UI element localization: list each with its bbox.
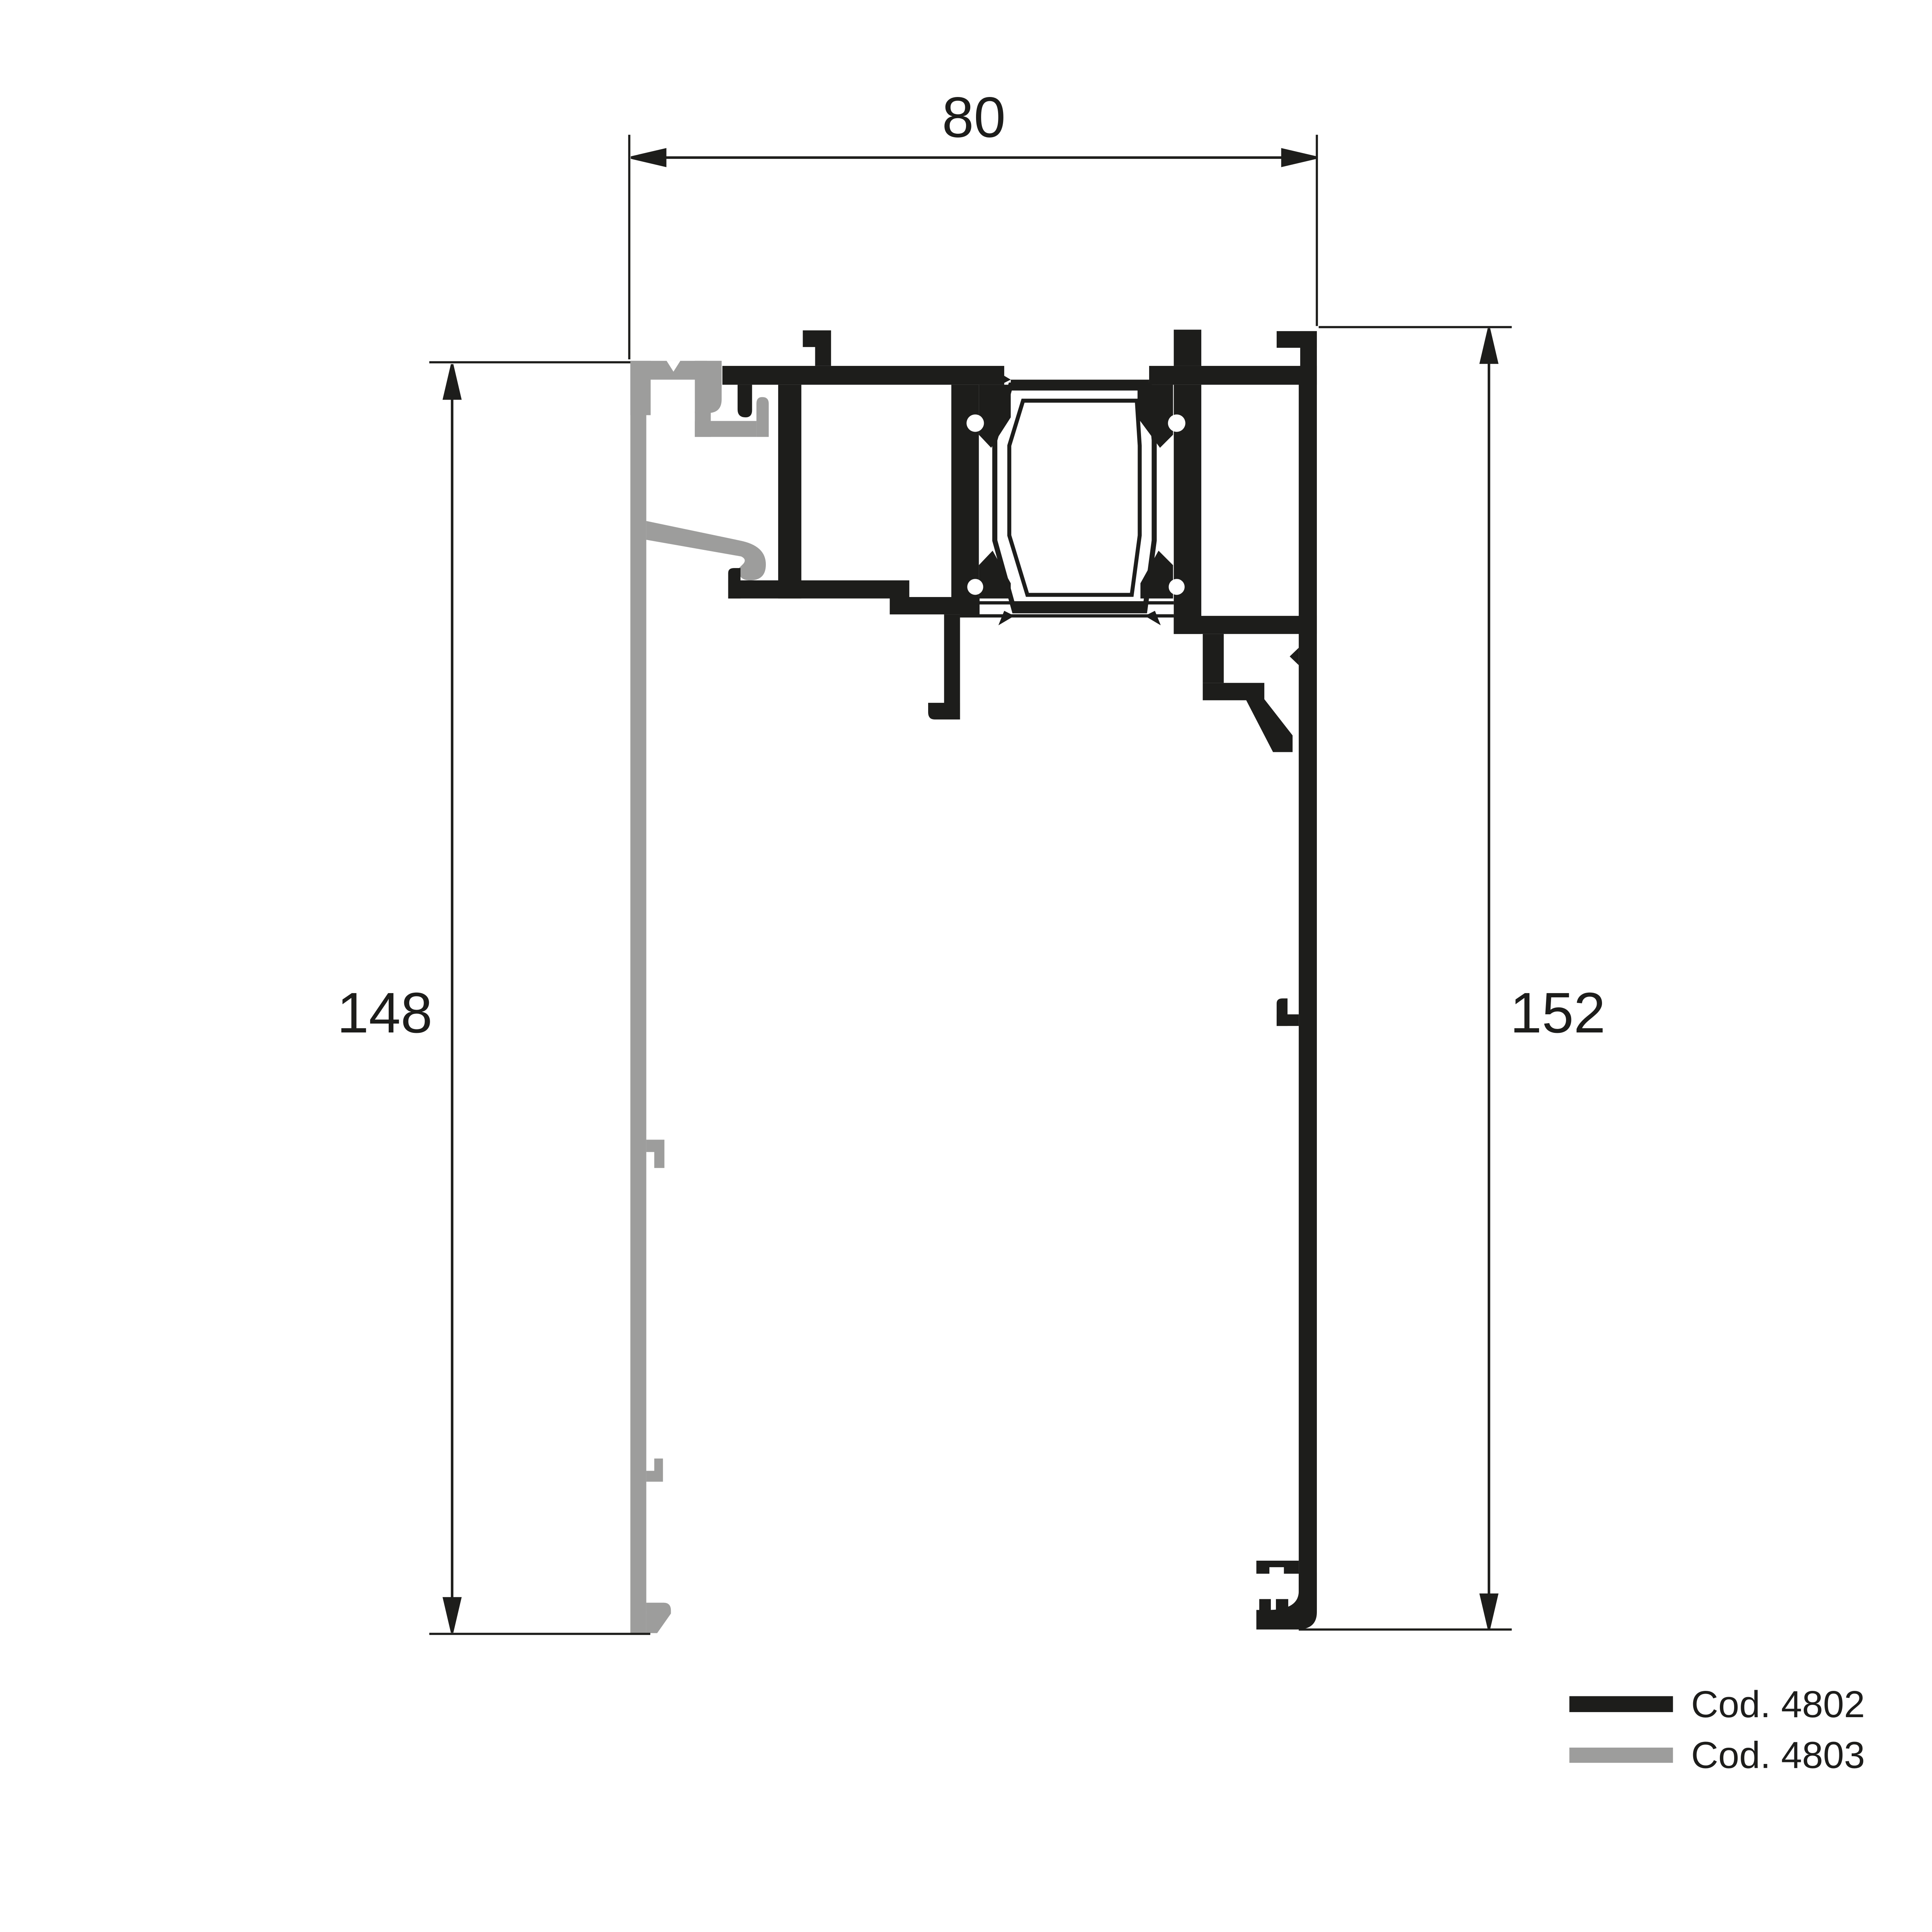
legend-label-4802: Cod. 4802 bbox=[1691, 1683, 1865, 1725]
dimension-graphics bbox=[429, 135, 1512, 1634]
legend-label-4803: Cod. 4803 bbox=[1691, 1734, 1865, 1776]
gray-middle-arm bbox=[646, 521, 766, 580]
clip-circle-br bbox=[1169, 579, 1185, 595]
foot-tooth-1 bbox=[1259, 1599, 1271, 1611]
arrowhead-148-bottom bbox=[444, 1599, 460, 1633]
arrowhead-148-top bbox=[444, 364, 460, 398]
left-chamber-wall bbox=[778, 385, 801, 599]
foot-tooth-2 bbox=[1276, 1599, 1288, 1611]
gray-bottom-foot bbox=[646, 1603, 671, 1633]
spike-bl bbox=[998, 611, 1014, 626]
right-leg bbox=[1299, 366, 1317, 1609]
clip-circle-bl bbox=[967, 579, 983, 595]
octagon-top-strip bbox=[1011, 380, 1149, 391]
gray-tab-upper bbox=[646, 1140, 665, 1168]
top-wall-left bbox=[722, 366, 1004, 385]
leg-tick bbox=[1290, 648, 1299, 665]
octagon-bottom-strip bbox=[1014, 601, 1145, 612]
legend-swatch-4803 bbox=[1570, 1748, 1673, 1763]
clip-circle-tr bbox=[1168, 415, 1185, 432]
gray-top-arm-head bbox=[695, 361, 721, 413]
arrowhead-80-right bbox=[1282, 150, 1316, 165]
gray-profile-cod-4803 bbox=[630, 361, 769, 1633]
arrowhead-152-bottom bbox=[1481, 1595, 1497, 1629]
spout-stub bbox=[1203, 634, 1224, 683]
legend-swatch-4802 bbox=[1570, 1696, 1673, 1712]
leg-inner-curve bbox=[1268, 1572, 1317, 1610]
foot-base bbox=[1256, 1610, 1317, 1630]
dim-label-width: 80 bbox=[942, 85, 1006, 149]
profile-section-svg: 80 148 152 Cod. 4802 Cod. 4803 bbox=[0, 0, 1932, 1932]
dim-label-left-height: 148 bbox=[337, 981, 432, 1045]
left-bottom-hook bbox=[728, 568, 740, 599]
foot-clip-tab bbox=[1256, 1561, 1299, 1574]
spout-diagonal bbox=[1246, 683, 1293, 752]
gray-tab-lower bbox=[646, 1459, 663, 1482]
arrowhead-152-top bbox=[1481, 328, 1497, 362]
left-bottom-step bbox=[890, 597, 980, 614]
gray-vertical-bar bbox=[630, 361, 646, 1633]
legend: Cod. 4802 Cod. 4803 bbox=[1570, 1683, 1865, 1776]
fin-left bbox=[803, 330, 831, 366]
right-bottom-wall bbox=[1174, 616, 1317, 634]
gray-up-tip bbox=[757, 397, 769, 437]
clip-circle-tl bbox=[966, 415, 984, 432]
arrowhead-80-left bbox=[631, 150, 665, 165]
fin-right bbox=[1174, 330, 1201, 366]
dim-label-right-height: 152 bbox=[1510, 981, 1605, 1045]
leg-up-hook-arm bbox=[1277, 1014, 1299, 1026]
gray-lower-band bbox=[695, 421, 756, 437]
left-bottom-band bbox=[728, 580, 909, 599]
spike-br bbox=[1145, 611, 1161, 626]
top-wall-right bbox=[1149, 366, 1317, 385]
technical-drawing-canvas: 80 148 152 Cod. 4802 Cod. 4803 bbox=[0, 0, 1932, 1932]
drip-fin-foot bbox=[928, 703, 960, 719]
clamp-tongue bbox=[738, 385, 752, 417]
